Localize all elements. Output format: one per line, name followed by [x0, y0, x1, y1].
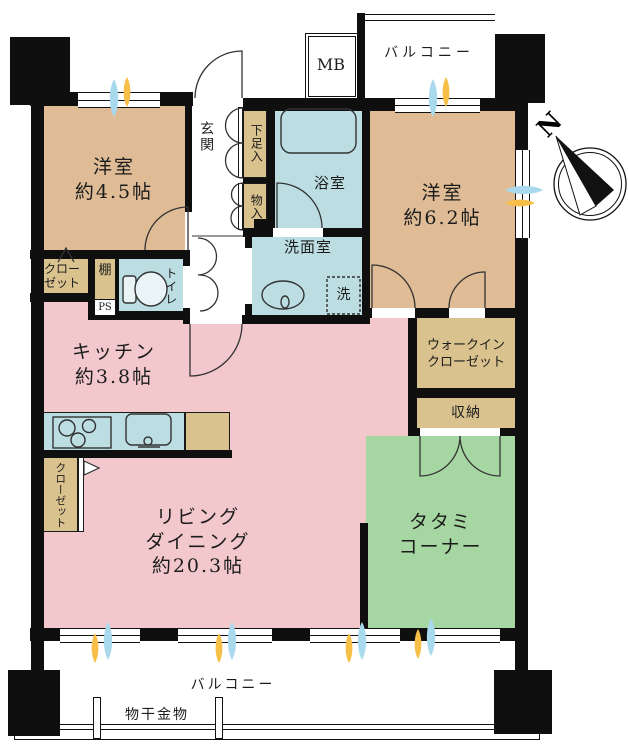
daylight-icon	[443, 77, 450, 107]
washbasin-drain	[281, 296, 289, 308]
plan-element: リビング	[156, 505, 240, 530]
plan-element: ダイニング	[145, 530, 250, 555]
plan-element: クロー	[52, 462, 67, 495]
plan-element: 約6.2帖	[403, 206, 481, 231]
plan-element: ウォークイン	[427, 338, 505, 355]
airflow-icon	[429, 79, 437, 117]
airflow-icon	[427, 618, 435, 656]
cabinet-door-arc	[231, 206, 243, 230]
floor-plan: 洋室 約4.5帖 洋室 約6.2帖 キッチン 約3.8帖 リビング ダイニング …	[0, 0, 628, 750]
label-tatami: タタミ コーナー	[366, 495, 515, 575]
label-pipe-space: PS	[94, 299, 116, 316]
plan-element: クロー	[44, 262, 80, 276]
cabinet-door-arc	[226, 108, 244, 143]
corridor-door-arc	[198, 238, 217, 275]
daylight-icon	[92, 633, 99, 663]
label-hall-storage: 物入	[246, 186, 265, 228]
plan-element: 約3.8帖	[75, 365, 153, 390]
label-balcony-top: バルコニー	[363, 42, 495, 64]
label-kitchen-closet: クロー ゼット	[44, 459, 76, 531]
plan-element: ゼット	[44, 276, 80, 290]
label-entrance: 玄関	[196, 113, 216, 161]
plan-element: 洋室	[421, 181, 463, 206]
plan-element: タタミ	[409, 510, 472, 535]
label-bedroom-east: 洋室 約6.2帖	[370, 152, 515, 260]
label-kitchen: キッチン 約3.8帖	[43, 325, 185, 405]
label-storage: 収納	[417, 398, 515, 428]
stove-burner	[59, 420, 75, 436]
label-toilet: トイレ	[161, 260, 179, 312]
toilet-tank	[123, 276, 136, 303]
plan-element: 洋室	[93, 155, 135, 180]
plan-element: 約4.5帖	[75, 180, 153, 205]
sink-drain	[144, 437, 152, 445]
label-washer: 洗	[327, 277, 360, 314]
plan-element: ゼット	[52, 495, 67, 528]
corridor-door-arc	[200, 275, 218, 311]
cabinet-door-arc	[232, 183, 243, 206]
daylight-icon	[216, 633, 223, 663]
label-bathroom: 浴室	[295, 172, 365, 196]
bedroom-east-door-arc	[449, 272, 485, 308]
daylight-icon	[415, 629, 422, 659]
airflow-icon	[358, 622, 366, 660]
label-balcony-bottom: バルコニー	[168, 674, 298, 696]
living-door-arc	[190, 324, 242, 376]
label-walk-in-closet: ウォークイン クローゼット	[417, 324, 515, 386]
label-laundry-hardware: 物干金物	[103, 705, 211, 725]
bathtub	[281, 109, 356, 153]
label-washroom: 洗面室	[256, 238, 360, 258]
kitchen-closet-door-mark	[84, 461, 99, 475]
cabinet-door-arc	[226, 143, 244, 178]
plan-element: クローゼット	[427, 355, 505, 372]
plan-element: コーナー	[398, 535, 482, 560]
tatami-door-arc	[420, 436, 460, 476]
kitchen-sink	[126, 414, 171, 445]
washbasin	[262, 281, 304, 309]
daylight-icon	[346, 633, 353, 663]
stove-burner	[83, 420, 96, 433]
tatami-door-arc	[460, 436, 500, 476]
label-bedroom-west: 洋室 約4.5帖	[43, 130, 185, 230]
bedroom-east-door-arc	[372, 265, 415, 308]
stove-burner	[71, 433, 85, 447]
label-meter-box: MB	[305, 33, 357, 98]
airflow-icon	[228, 622, 236, 660]
airflow-icon	[110, 79, 118, 117]
label-shelf: 棚	[95, 262, 115, 280]
label-closet-west: クロー ゼット	[36, 259, 88, 293]
label-living-dining: リビング ダイニング 約20.3帖	[48, 492, 348, 592]
entry-door-arc	[195, 51, 242, 98]
plan-element: 約20.3帖	[152, 554, 244, 579]
plan-element: キッチン	[72, 340, 156, 365]
compass-icon	[554, 136, 626, 220]
airflow-icon	[104, 622, 112, 660]
daylight-icon	[124, 77, 131, 107]
label-shoe-cabinet: 下足入	[246, 110, 265, 176]
